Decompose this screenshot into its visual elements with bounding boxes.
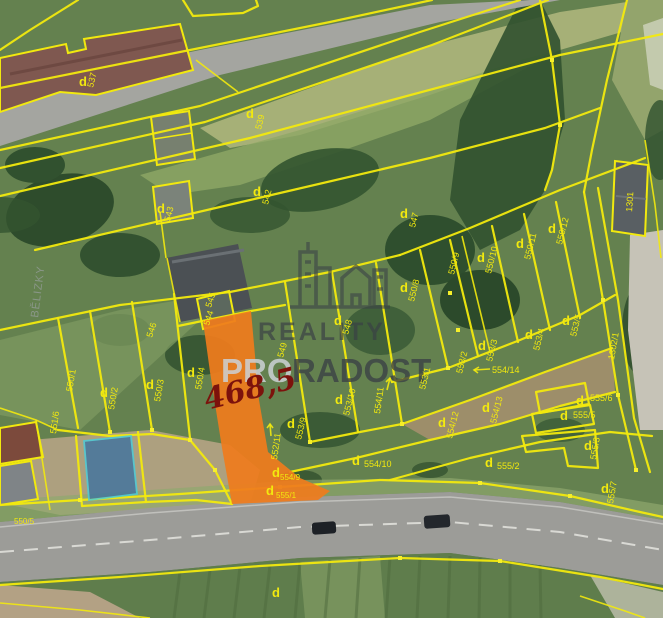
parcel-label: 550/5 [14, 517, 35, 526]
parcel-marker-d: d [576, 393, 584, 408]
parcel-marker-d: d [272, 585, 280, 600]
parcel-marker-d: d [272, 465, 280, 480]
parcel-marker-d: d [253, 184, 261, 199]
parcel-marker-d: d [525, 327, 533, 342]
parcel-label: 554/9 [280, 473, 301, 482]
parcel-label: 555/2 [497, 461, 520, 471]
parcel-marker-d: d [482, 400, 490, 415]
parcel-marker-d: d [548, 221, 556, 236]
parcel-marker-d: d [560, 408, 568, 423]
parcel-marker-d: d [400, 206, 408, 221]
car [424, 514, 451, 529]
parcel-marker-d: d [335, 392, 343, 407]
cadastral-map-image: BĚLIZKY [0, 0, 663, 618]
parcel-marker-d: d [287, 416, 295, 431]
parcel-label: 554/14 [492, 365, 520, 375]
parcel-marker-d: d [477, 250, 485, 265]
parcel-marker-d: d [485, 455, 493, 470]
parcel-label: 555/1 [276, 491, 297, 500]
parcel-label: 555/6 [590, 393, 613, 403]
watermark-reality-text: REALITY [258, 318, 386, 346]
parcel-marker-d: d [352, 453, 360, 468]
parcel-marker-d: d [438, 415, 446, 430]
parcel-marker-d: d [400, 280, 408, 295]
parcel-marker-d: d [100, 385, 108, 400]
car [312, 521, 337, 535]
parcel-marker-d: d [187, 365, 195, 380]
parcel-label: 554/10 [364, 459, 392, 469]
parcel-marker-d: d [562, 313, 570, 328]
parcel-marker-d: d [146, 377, 154, 392]
parcel-marker-d: d [478, 338, 486, 353]
parcel-marker-d: d [246, 106, 254, 121]
parcel-marker-d: d [266, 483, 274, 498]
building-gray-bottomleft [0, 461, 38, 505]
parcel-label: 555/5 [573, 410, 596, 420]
parcel-label: 1301 [624, 191, 635, 212]
parcel-marker-d: d [334, 313, 342, 328]
watermark-radost-text: RADOST [292, 352, 431, 389]
secondary-highlighted-parcel [84, 436, 137, 500]
parcel-marker-d: d [516, 236, 524, 251]
